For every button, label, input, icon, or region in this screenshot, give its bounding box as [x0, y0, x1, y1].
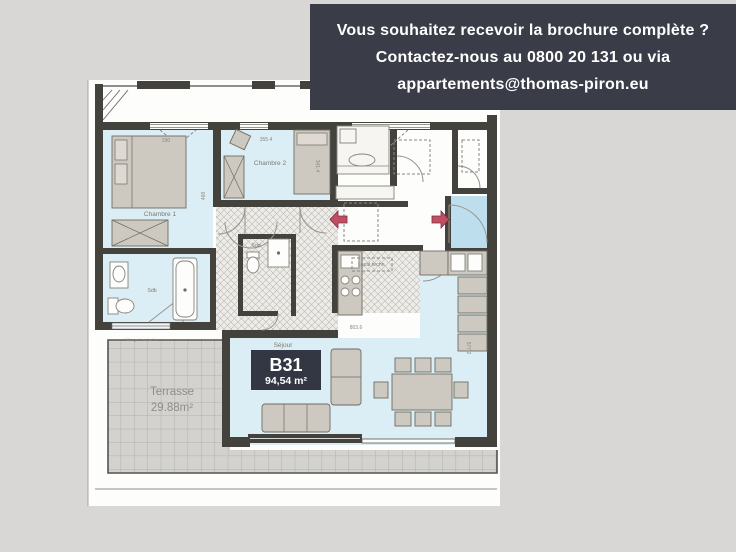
unit-badge: B31 94,54 m²	[251, 350, 321, 390]
window-chambre2	[240, 123, 268, 129]
bed-neighbor-icon	[337, 126, 389, 174]
kitchen-tall-cabinet	[458, 296, 487, 313]
label-terrasse-area: 29.88m²	[151, 402, 193, 414]
label-terrasse: Terrasse	[150, 386, 194, 398]
label-chambre2: Chambre 2	[254, 160, 287, 167]
wardrobe-chambre2-icon	[224, 156, 244, 198]
dim-290: 290	[162, 138, 171, 144]
bed-chambre1-icon	[112, 136, 186, 208]
shower-icon	[268, 239, 289, 267]
kitchen-tall-cabinet	[458, 315, 487, 332]
dim-468: 468	[201, 192, 207, 201]
window-vitrage-translucide	[112, 323, 170, 329]
dim-355-4: 355.4	[260, 137, 273, 143]
label-sejour: Séjour	[274, 342, 294, 349]
bench-icon	[336, 186, 394, 199]
unit-code: B31	[269, 355, 302, 375]
unit-area: 94,54 m²	[265, 375, 308, 387]
banner-line-1: Vous souhaitez recevoir la brochure comp…	[337, 17, 710, 44]
wardrobe-chambre1-icon	[112, 220, 168, 246]
floor-plan-screenshot: B31 94,54 m² Chambre 1 Chambre 2 Sdb Sdd…	[0, 0, 736, 552]
dim-341-4: 341.4	[314, 160, 320, 173]
kitchen-tall-cabinet	[458, 334, 487, 351]
kitchen-cabinet	[420, 251, 448, 275]
toilet-sdb-icon	[108, 298, 134, 314]
sofa-icon	[262, 404, 330, 432]
bathtub-icon	[173, 258, 197, 320]
label-sdb: Sdb	[147, 288, 156, 294]
window-chambre1	[150, 123, 208, 129]
banner-line-3: appartements@thomas-piron.eu	[397, 71, 648, 98]
kitchen-tall-cabinet	[458, 277, 487, 294]
banner-line-2: Contactez-nous au 0800 20 131 ou via	[376, 44, 670, 71]
label-local-technique: Local techn.	[358, 262, 386, 268]
washbasin-icon	[110, 262, 128, 288]
label-chambre1: Chambre 1	[144, 211, 177, 218]
label-sdd: Sdd	[251, 243, 260, 249]
label-vitrage: Vitrage translucide	[125, 337, 159, 342]
toilet-sdd-icon	[247, 252, 259, 273]
loveseat-icon	[331, 349, 361, 405]
kitchen-sink-icon	[448, 251, 487, 275]
dim-803-6: 803.6	[350, 325, 363, 331]
brochure-banner: Vous souhaitez recevoir la brochure comp…	[310, 4, 736, 110]
dim-577-2: 577.2	[465, 342, 471, 355]
bed-chambre2-icon	[294, 130, 330, 194]
